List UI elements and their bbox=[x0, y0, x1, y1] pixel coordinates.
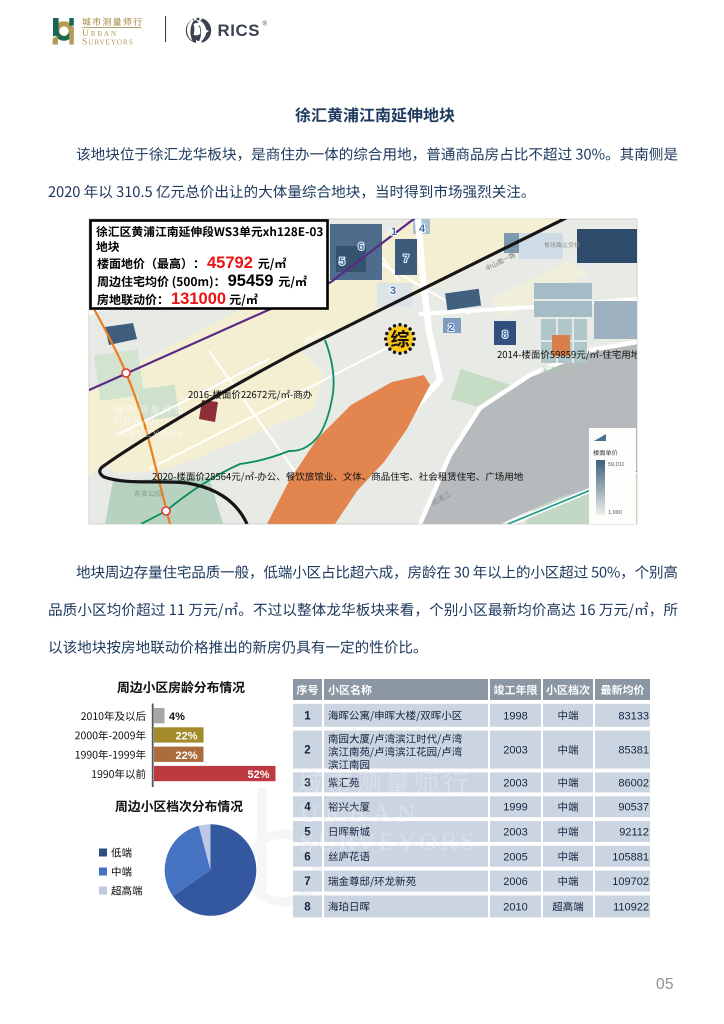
svg-text:52%: 52% bbox=[247, 769, 269, 781]
svg-text:8: 8 bbox=[502, 329, 508, 341]
svg-text:83133: 83133 bbox=[618, 710, 649, 722]
svg-text:3: 3 bbox=[390, 285, 396, 297]
svg-text:4: 4 bbox=[419, 223, 426, 235]
svg-text:59,011: 59,011 bbox=[608, 462, 624, 468]
svg-text:2010: 2010 bbox=[503, 901, 527, 913]
svg-text:SURVEYORS: SURVEYORS bbox=[114, 429, 183, 440]
svg-text:86002: 86002 bbox=[618, 777, 649, 789]
svg-text:5: 5 bbox=[339, 256, 345, 268]
svg-text:92112: 92112 bbox=[619, 827, 649, 839]
svg-text:1: 1 bbox=[304, 710, 311, 722]
svg-text:SURVEYORS: SURVEYORS bbox=[82, 37, 134, 48]
svg-text:05: 05 bbox=[656, 976, 674, 993]
svg-text:SURVEYORS: SURVEYORS bbox=[300, 829, 478, 856]
svg-text:URBAN: URBAN bbox=[114, 417, 161, 428]
svg-text:RICS: RICS bbox=[218, 21, 261, 40]
svg-text:URBAN: URBAN bbox=[300, 801, 423, 828]
svg-text:2: 2 bbox=[448, 322, 454, 334]
svg-text:6: 6 bbox=[358, 241, 364, 253]
svg-text:85381: 85381 bbox=[618, 745, 649, 757]
svg-text:105881: 105881 bbox=[612, 851, 649, 863]
svg-text:7: 7 bbox=[304, 876, 310, 888]
svg-text:2005: 2005 bbox=[503, 851, 527, 863]
svg-text:2003: 2003 bbox=[503, 827, 527, 839]
svg-text:2003: 2003 bbox=[503, 745, 527, 757]
svg-text:109702: 109702 bbox=[612, 876, 649, 888]
svg-text:4%: 4% bbox=[169, 711, 185, 723]
svg-text:1999: 1999 bbox=[503, 802, 527, 814]
svg-text:1: 1 bbox=[391, 226, 397, 238]
svg-text:®: ® bbox=[263, 21, 268, 28]
svg-text:8: 8 bbox=[304, 901, 311, 913]
svg-text:22%: 22% bbox=[175, 731, 197, 743]
svg-text:110922: 110922 bbox=[613, 901, 649, 913]
svg-text:2: 2 bbox=[304, 745, 310, 757]
svg-text:2003: 2003 bbox=[503, 777, 527, 789]
svg-text:22%: 22% bbox=[175, 750, 197, 762]
svg-text:131000: 131000 bbox=[171, 290, 226, 308]
svg-text:1,990: 1,990 bbox=[608, 510, 622, 516]
svg-text:2006: 2006 bbox=[503, 876, 527, 888]
svg-text:95459: 95459 bbox=[228, 272, 274, 290]
svg-text:7: 7 bbox=[403, 253, 409, 265]
svg-text:1998: 1998 bbox=[503, 710, 527, 722]
svg-text:45792: 45792 bbox=[207, 254, 253, 272]
svg-text:90537: 90537 bbox=[618, 802, 649, 814]
